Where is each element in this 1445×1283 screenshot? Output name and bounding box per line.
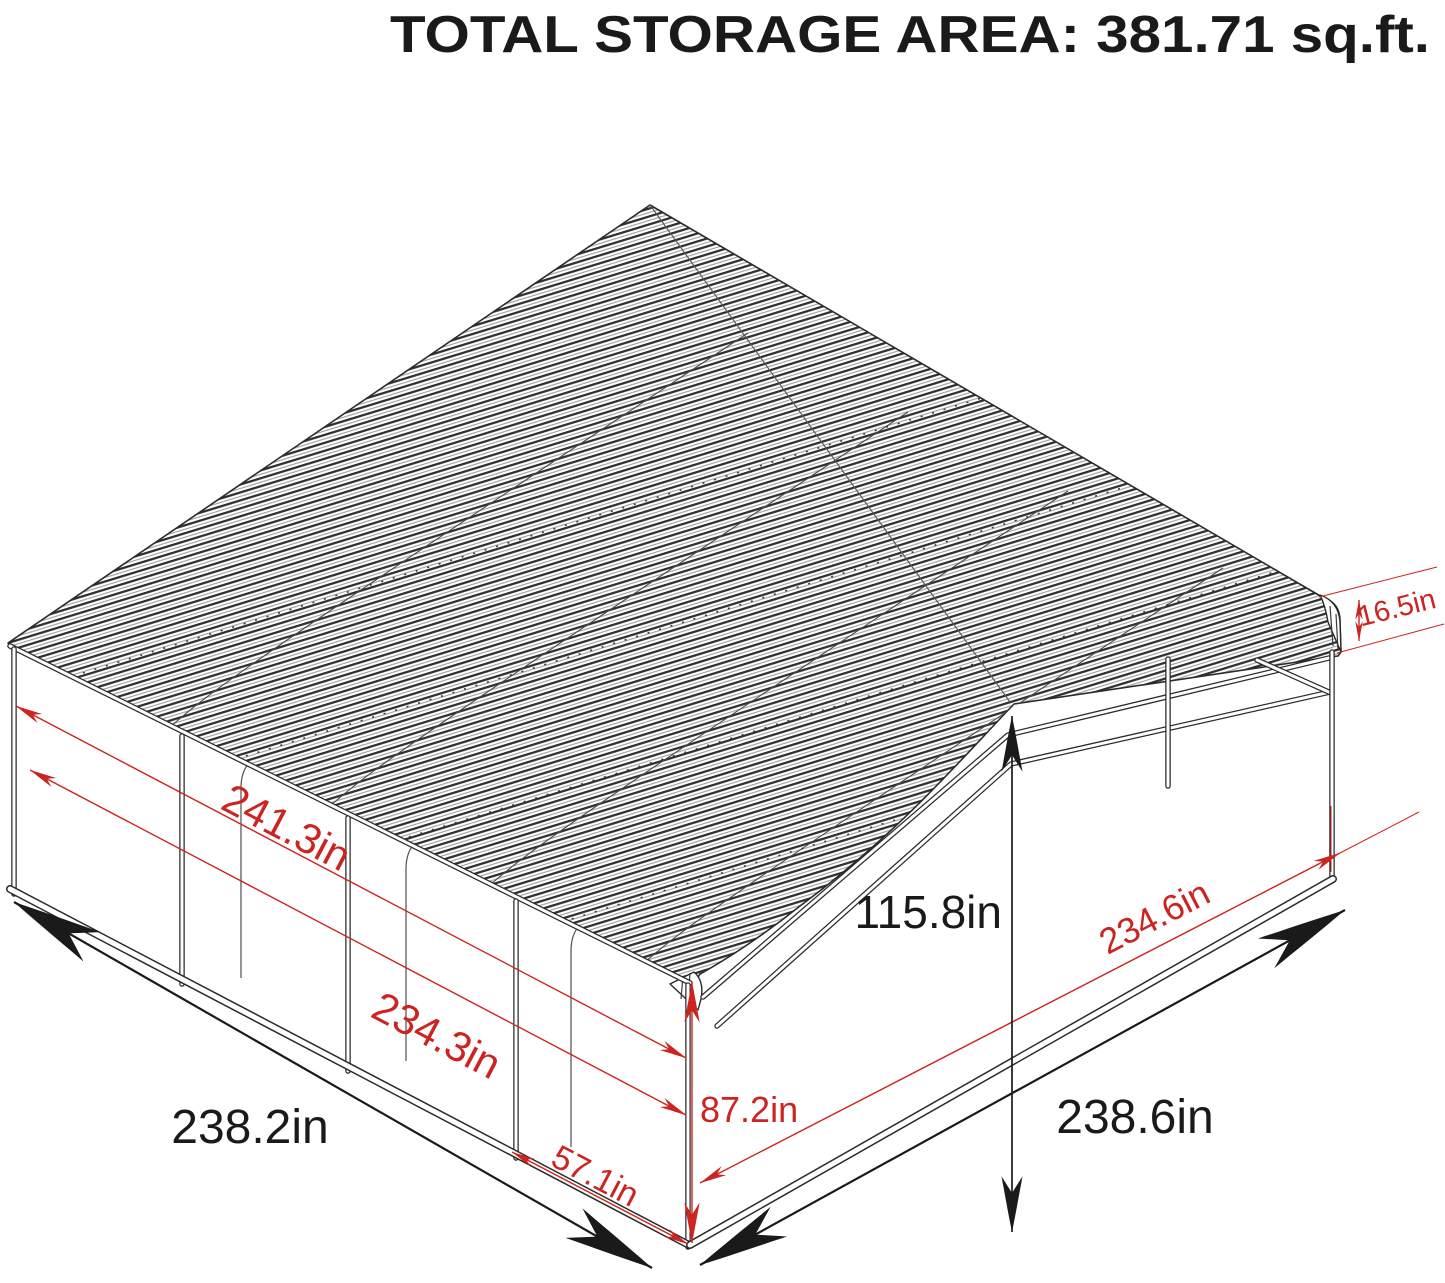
dim-front-base-width: 238.6in [692, 895, 1353, 1280]
dim-label-bay-spacing: 57.1in [545, 1138, 645, 1215]
corrugated-roof [8, 205, 1341, 986]
dim-eave-height: 87.2in [684, 982, 798, 1243]
dim-label-peak-height: 115.8in [854, 886, 1002, 938]
carport-dimension-diagram: 241.3in 234.3in 57.1in 87.2in 234. [0, 0, 1445, 1283]
dim-label-side-inner-length: 234.3in [365, 982, 509, 1088]
dim-label-roof-edge-height: 16.5in [1355, 583, 1439, 633]
dim-label-eave-height: 87.2in [700, 1089, 798, 1130]
dim-label-side-base-length: 238.2in [171, 1101, 328, 1154]
total-storage-area-title: TOTAL STORAGE AREA: 381.71 sq.ft. [390, 6, 1430, 64]
dim-label-front-base-width: 238.6in [1056, 1091, 1213, 1144]
diagram-canvas: 241.3in 234.3in 57.1in 87.2in 234. [0, 0, 1445, 1283]
dim-side-base-length: 238.2in [6, 887, 661, 1282]
